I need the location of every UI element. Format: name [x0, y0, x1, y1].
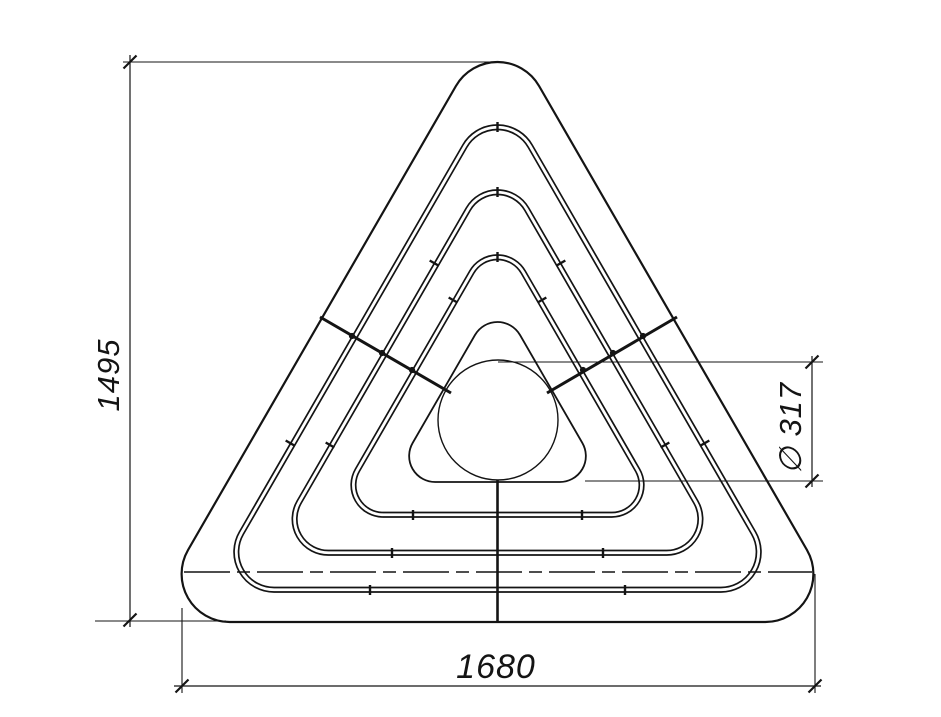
section-cut-line-left [320, 317, 451, 393]
section-cut-junction-dot [580, 367, 586, 373]
section-cut-junction-dot [640, 333, 646, 339]
drawing-sheet: 1495 1680 ∅ 317 [0, 0, 941, 717]
inner-border [409, 322, 586, 482]
section-cut-junction-dot [409, 367, 415, 373]
width-dimension-label: 1680 [456, 648, 536, 686]
section-cut-junction-dot [610, 350, 616, 356]
height-dimension-label: 1495 [91, 339, 126, 412]
plank-ring-3-inner-line [356, 259, 640, 512]
diameter-dimension-label: ∅ 317 [773, 381, 808, 474]
section-cut-junction-dot [379, 350, 385, 356]
center-circle [438, 360, 558, 480]
technical-drawing-canvas: 1495 1680 ∅ 317 [0, 0, 941, 717]
section-cut-junction-dot [349, 333, 355, 339]
plank-ring-3 [351, 255, 644, 517]
